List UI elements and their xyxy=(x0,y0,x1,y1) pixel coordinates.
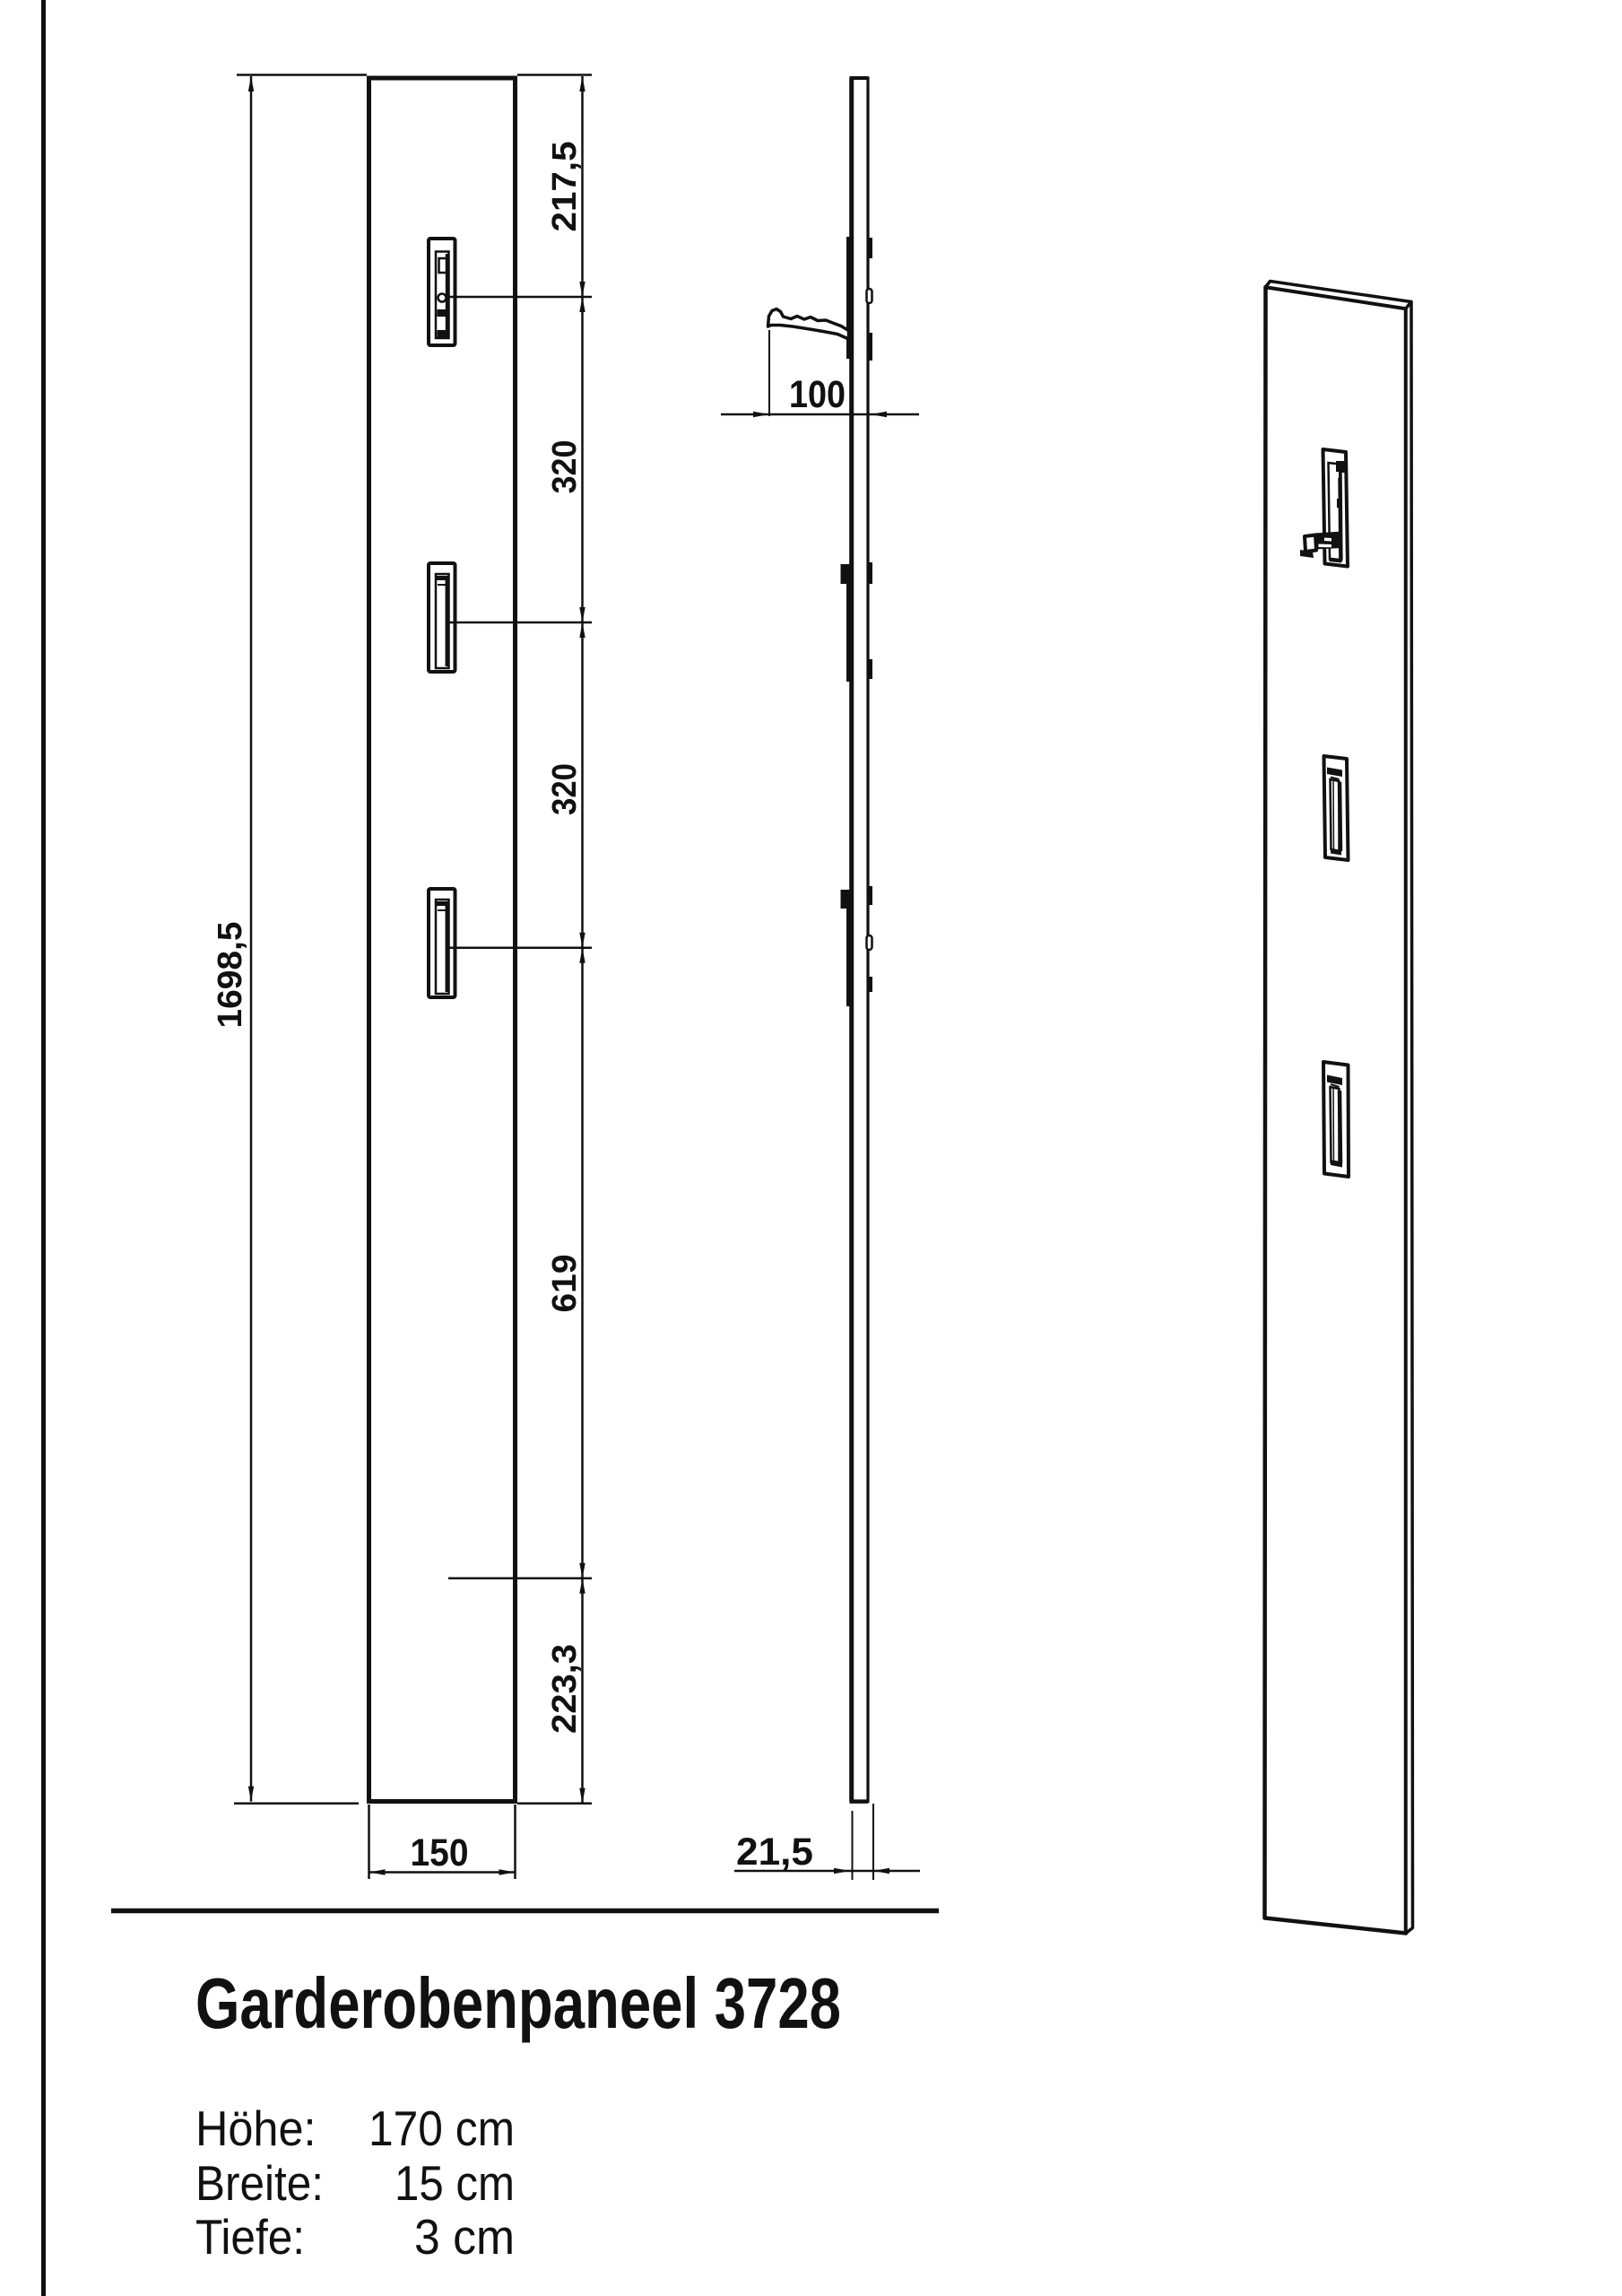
svg-text:Höhe:: Höhe: xyxy=(195,2100,317,2156)
svg-text:3 cm: 3 cm xyxy=(414,2209,515,2265)
svg-text:Tiefe:: Tiefe: xyxy=(195,2209,305,2265)
svg-text:170 cm: 170 cm xyxy=(369,2100,515,2156)
svg-text:100: 100 xyxy=(789,373,846,416)
svg-text:320: 320 xyxy=(546,763,584,815)
svg-text:15 cm: 15 cm xyxy=(395,2155,515,2211)
svg-text:223,3: 223,3 xyxy=(546,1644,584,1734)
svg-text:21,5: 21,5 xyxy=(736,1831,813,1874)
svg-text:1698,5: 1698,5 xyxy=(212,922,249,1029)
svg-text:Breite:: Breite: xyxy=(195,2155,324,2211)
svg-text:Garderobenpaneel 3728: Garderobenpaneel 3728 xyxy=(195,1963,841,2043)
svg-text:320: 320 xyxy=(546,440,584,494)
svg-text:150: 150 xyxy=(411,1831,469,1874)
svg-text:217,5: 217,5 xyxy=(546,142,584,232)
svg-text:619: 619 xyxy=(546,1255,584,1313)
